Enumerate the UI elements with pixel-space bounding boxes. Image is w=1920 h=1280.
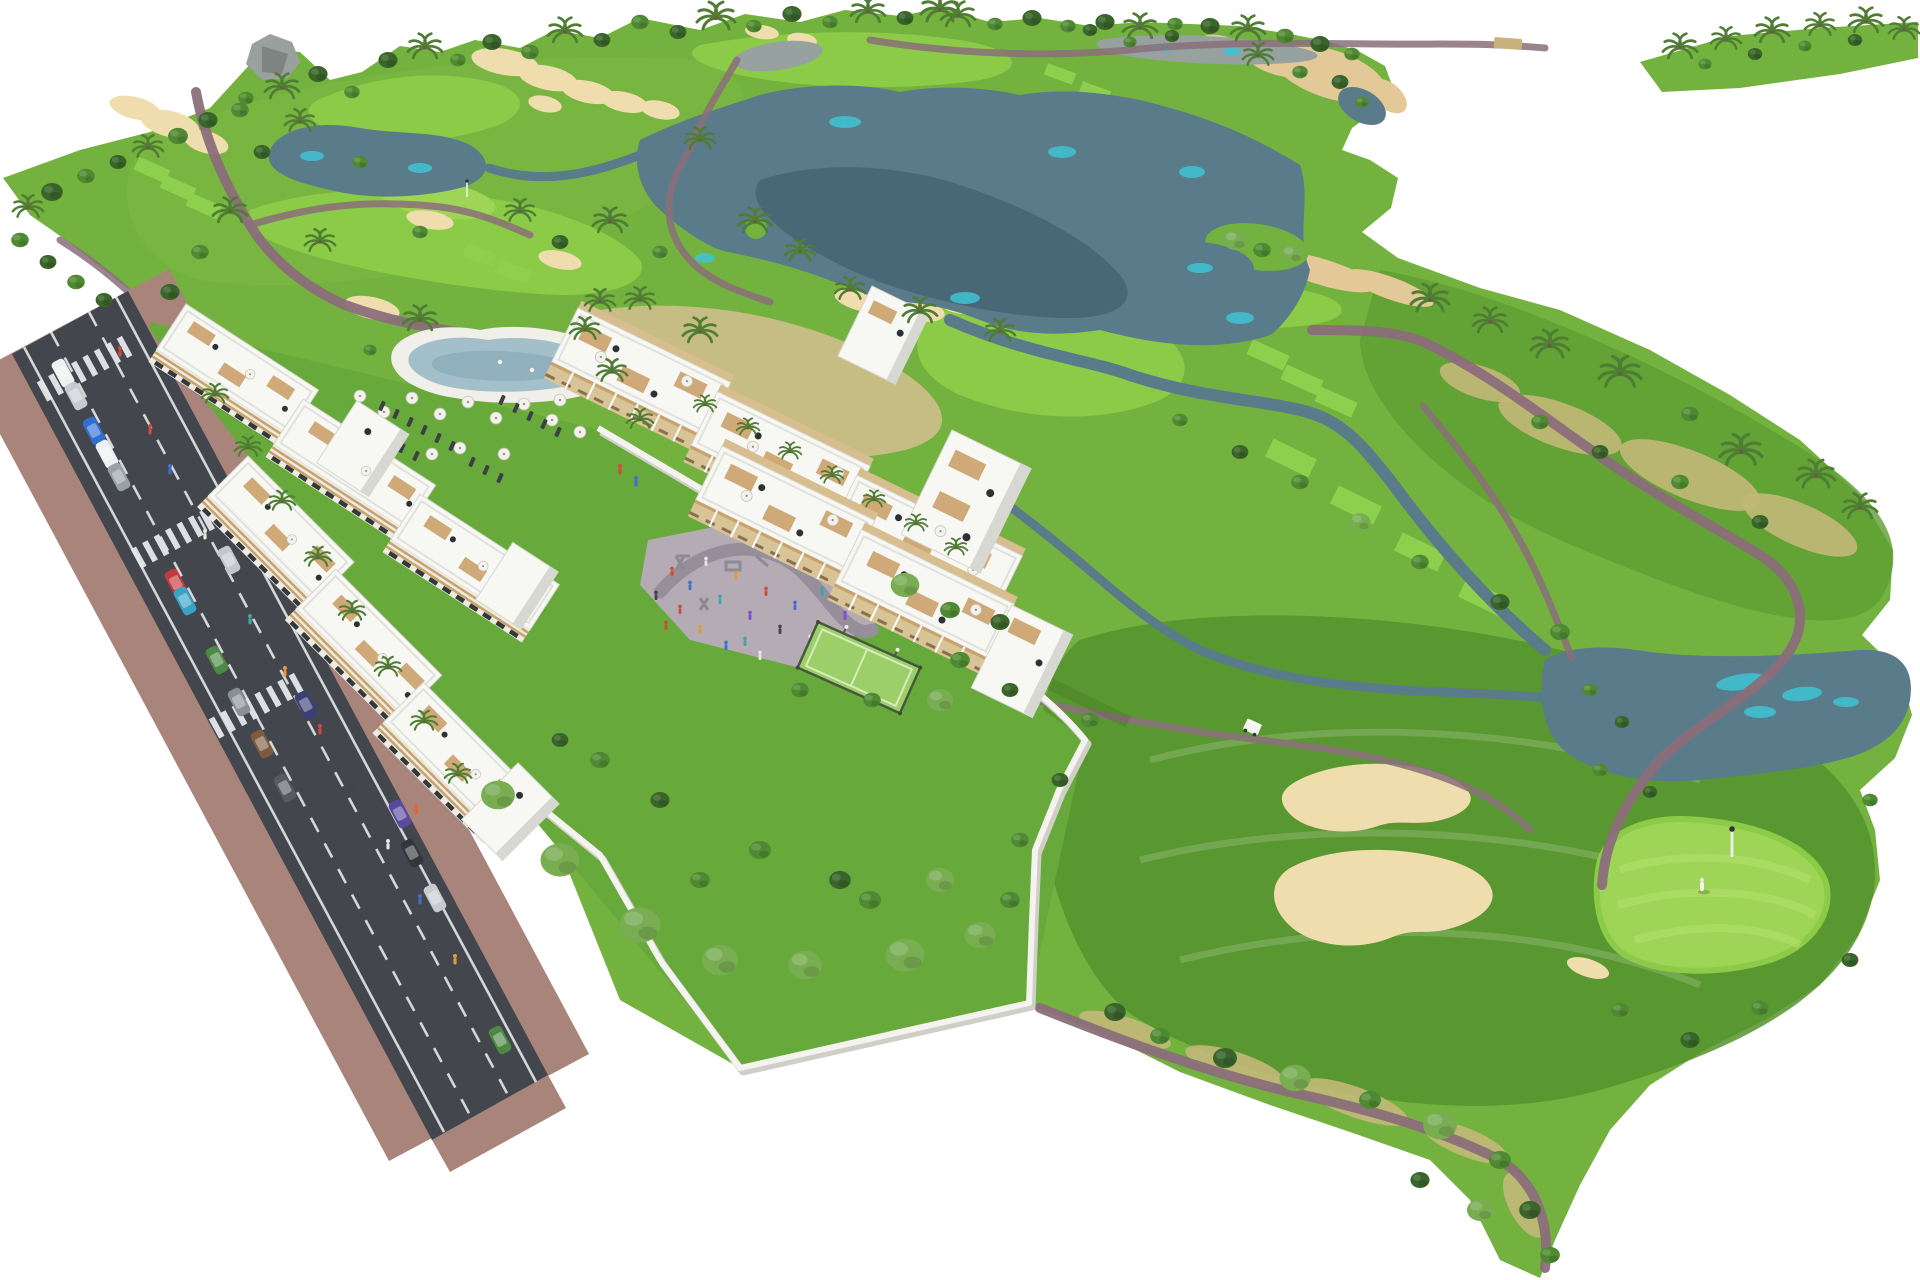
tree-icon	[1123, 37, 1136, 48]
pedestrian	[418, 894, 422, 905]
tree-icon	[863, 693, 881, 707]
tree-icon	[1848, 34, 1862, 46]
tree-icon	[1643, 786, 1657, 798]
tree-icon	[1282, 245, 1303, 263]
tree-icon	[829, 871, 851, 889]
tree-icon	[590, 752, 610, 768]
tree-icon	[897, 11, 914, 25]
tree-icon	[1022, 10, 1041, 26]
tree-icon	[1223, 230, 1246, 250]
tree-icon	[344, 86, 359, 99]
tree-icon	[1200, 18, 1219, 34]
tree-icon	[690, 872, 710, 888]
tree-icon	[1592, 764, 1607, 777]
tree-icon	[363, 345, 376, 356]
tree-icon	[782, 6, 801, 22]
tree-icon	[238, 92, 253, 105]
tree-icon	[1615, 716, 1629, 728]
tree-icon	[1150, 1028, 1170, 1044]
tree-icon	[1410, 1172, 1429, 1188]
tree-icon	[1359, 1091, 1381, 1109]
tree-icon	[1350, 513, 1371, 531]
tree-icon	[1611, 1003, 1629, 1017]
pedestrian	[350, 780, 354, 791]
pedestrian	[318, 724, 322, 735]
tree-icon	[552, 235, 569, 249]
footbridge	[1494, 37, 1523, 50]
cyclist	[634, 476, 638, 487]
tree-icon	[110, 155, 127, 169]
pedestrian	[248, 614, 252, 625]
tree-icon	[1213, 1048, 1237, 1068]
tree-icon	[1592, 445, 1609, 459]
tree-icon	[964, 922, 995, 948]
tree-icon	[1531, 415, 1549, 429]
tree-icon	[987, 18, 1002, 31]
tree-icon	[11, 233, 29, 247]
tree-icon	[231, 103, 249, 117]
tree-icon	[631, 15, 649, 29]
pedestrian	[118, 346, 122, 357]
tree-icon	[1842, 953, 1859, 967]
tree-icon	[859, 891, 881, 909]
tree-icon	[1862, 794, 1877, 807]
tree-icon	[1095, 14, 1114, 30]
tree-icon	[1355, 97, 1368, 108]
tree-icon	[1344, 48, 1359, 61]
aerial-render-canvas	[0, 0, 1920, 1280]
pedestrian	[203, 529, 207, 540]
tree-icon	[652, 246, 667, 259]
tree-icon	[1752, 515, 1769, 529]
tree-icon	[482, 34, 501, 50]
tree-icon	[352, 156, 367, 169]
top-right-corner-strip	[1640, 22, 1918, 92]
tree-icon	[1489, 1151, 1511, 1169]
tree-icon	[41, 183, 63, 201]
tree-icon	[886, 939, 925, 972]
tree-icon	[1310, 36, 1329, 52]
tree-icon	[950, 652, 970, 668]
tree-icon	[746, 20, 761, 33]
tree-icon	[1748, 48, 1762, 60]
tree-icon	[1332, 75, 1349, 89]
tree-icon	[481, 781, 515, 810]
tree-icon	[450, 54, 465, 67]
tree-icon	[1698, 59, 1711, 70]
tree-icon	[1423, 1111, 1457, 1140]
tree-icon	[412, 226, 427, 239]
tree-icon	[1276, 29, 1294, 43]
tree-icon	[940, 602, 960, 618]
pedestrian	[414, 804, 418, 815]
tree-icon	[788, 951, 822, 980]
tree-icon	[1540, 1247, 1560, 1263]
tree-icon	[990, 614, 1009, 630]
pedestrian	[453, 954, 457, 965]
tree-icon	[1671, 475, 1689, 489]
tree-icon	[96, 293, 113, 307]
tree-icon	[1253, 243, 1271, 257]
tree-icon	[191, 245, 209, 259]
tree-icon	[1279, 1065, 1310, 1091]
tree-icon	[1681, 407, 1699, 421]
pedestrian	[168, 464, 172, 475]
tree-icon	[1550, 624, 1570, 640]
tree-icon	[1291, 475, 1309, 489]
tree-icon	[1000, 892, 1020, 908]
tree-icon	[1232, 445, 1249, 459]
tree-icon	[160, 284, 179, 300]
tree-icon	[1002, 683, 1019, 697]
tree-icon	[1411, 555, 1429, 569]
tree-icon	[1751, 1001, 1769, 1015]
tree-icon	[1798, 41, 1811, 52]
tree-icon	[1167, 18, 1182, 31]
tree-icon	[1519, 1201, 1541, 1219]
tree-icon	[1052, 773, 1069, 787]
tree-icon	[1060, 20, 1075, 33]
tree-icon	[541, 844, 580, 877]
tree-icon	[650, 792, 669, 808]
tree-icon	[1172, 414, 1187, 427]
tree-icon	[822, 16, 837, 29]
tree-icon	[791, 683, 809, 697]
tree-icon	[670, 25, 687, 39]
tree-icon	[749, 841, 771, 859]
tree-icon	[702, 945, 738, 976]
tree-icon	[1680, 1032, 1699, 1048]
tree-icon	[552, 733, 569, 747]
tree-icon	[1292, 66, 1307, 79]
pedestrian	[386, 839, 390, 850]
tree-icon	[308, 66, 327, 82]
tree-icon	[1081, 713, 1099, 727]
tree-icon	[521, 45, 539, 59]
tree-icon	[1467, 1199, 1493, 1221]
tree-icon	[40, 255, 57, 269]
cyclist	[618, 464, 622, 475]
tree-icon	[168, 128, 188, 144]
tree-icon	[1490, 594, 1509, 610]
tree-icon	[1083, 24, 1097, 36]
tree-icon	[1011, 833, 1029, 847]
tree-icon	[1165, 30, 1179, 42]
tree-icon	[1582, 684, 1597, 697]
tree-icon	[927, 689, 953, 711]
tree-icon	[254, 145, 271, 159]
tree-icon	[891, 573, 920, 597]
tree-icon	[1104, 1003, 1126, 1021]
tree-icon	[67, 275, 85, 289]
tree-icon	[198, 112, 217, 128]
tree-icon	[619, 907, 661, 942]
render-stage	[0, 0, 1920, 1280]
tree-icon	[378, 52, 397, 68]
pedestrian	[283, 666, 287, 677]
tree-icon	[594, 33, 611, 47]
tree-icon	[926, 868, 955, 892]
pedestrian	[148, 424, 152, 435]
tree-icon	[77, 169, 95, 183]
